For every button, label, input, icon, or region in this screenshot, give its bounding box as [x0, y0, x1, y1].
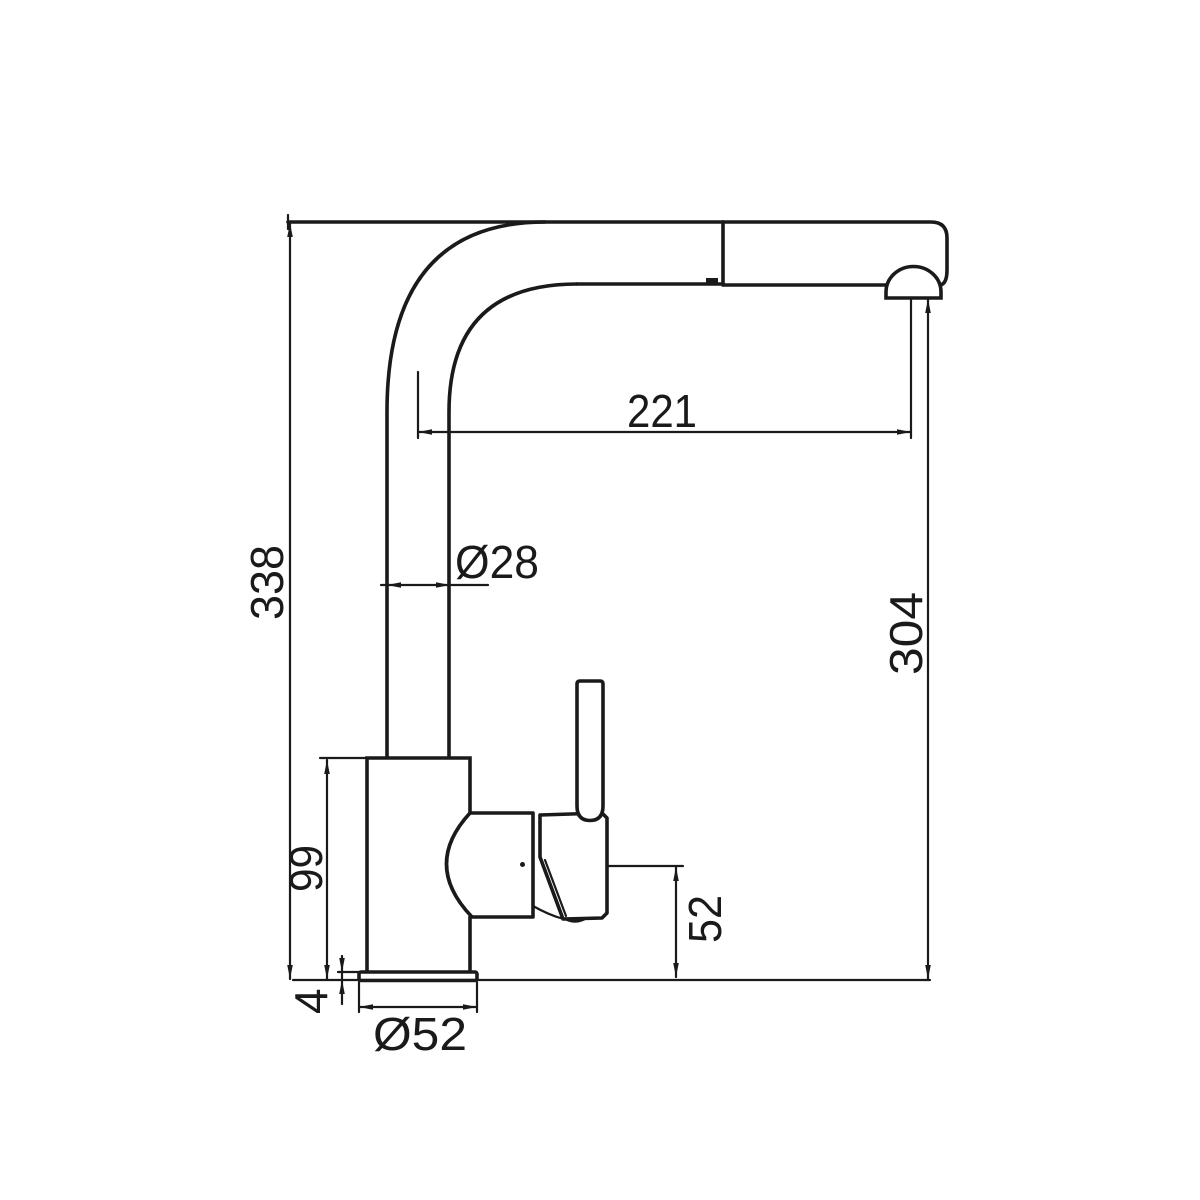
dim-d52-arrow-left	[359, 1004, 373, 1010]
dim-tube-diameter: Ø28	[381, 536, 539, 588]
dim-221-label: 221	[627, 385, 697, 437]
head-clip-detail	[706, 278, 718, 284]
dim-d52-label: Ø52	[373, 1008, 467, 1060]
dim-handle-height: 52	[673, 867, 731, 977]
dim-4-label: 4	[285, 988, 337, 1014]
dim-d28-label: Ø28	[455, 536, 539, 588]
dim-4-arrow-upper	[339, 958, 345, 972]
dim-338-arrow-bottom	[287, 965, 293, 979]
handle-lip-shadow	[562, 919, 588, 923]
dim-99-label: 99	[280, 845, 332, 892]
dim-338-label: 338	[241, 545, 293, 620]
dim-221-arrow-left	[418, 429, 432, 435]
dim-304-arrow-bottom	[925, 965, 931, 979]
dim-body-height: 99	[280, 760, 332, 979]
dim-221-arrow-right	[897, 429, 911, 435]
aerator-dome	[886, 267, 941, 298]
technical-drawing-canvas: 338 221 Ø28 304 99	[0, 0, 1200, 1200]
dim-base-diameter: Ø52	[359, 1004, 477, 1060]
dim-304-arrow-top	[925, 299, 931, 313]
dim-52-arrow-bottom	[673, 963, 679, 977]
handle-lever	[577, 681, 603, 821]
spout-outer-curve	[387, 222, 545, 757]
dim-spout-reach: 221	[418, 385, 911, 437]
dim-d28-arrow-left	[387, 582, 401, 588]
dimension-annotations: 338 221 Ø28 304 99	[241, 223, 932, 1060]
dim-99-arrow-bottom	[324, 965, 330, 979]
handle-hub	[540, 813, 607, 919]
dim-plate-thickness: 4	[285, 956, 345, 1014]
dim-52-arrow-top	[673, 867, 679, 881]
dim-outlet-height: 304	[880, 299, 932, 979]
dim-99-arrow-top	[324, 760, 330, 774]
cartridge-housing	[446, 813, 533, 917]
dim-304-label: 304	[880, 592, 932, 675]
spout-inner-curve	[449, 284, 577, 757]
pivot-center-dot	[520, 862, 525, 867]
dim-52-label: 52	[679, 895, 731, 943]
dim-4-arrow-lower	[339, 980, 345, 994]
faucet-dimension-drawing: 338 221 Ø28 304 99	[0, 0, 1200, 1200]
